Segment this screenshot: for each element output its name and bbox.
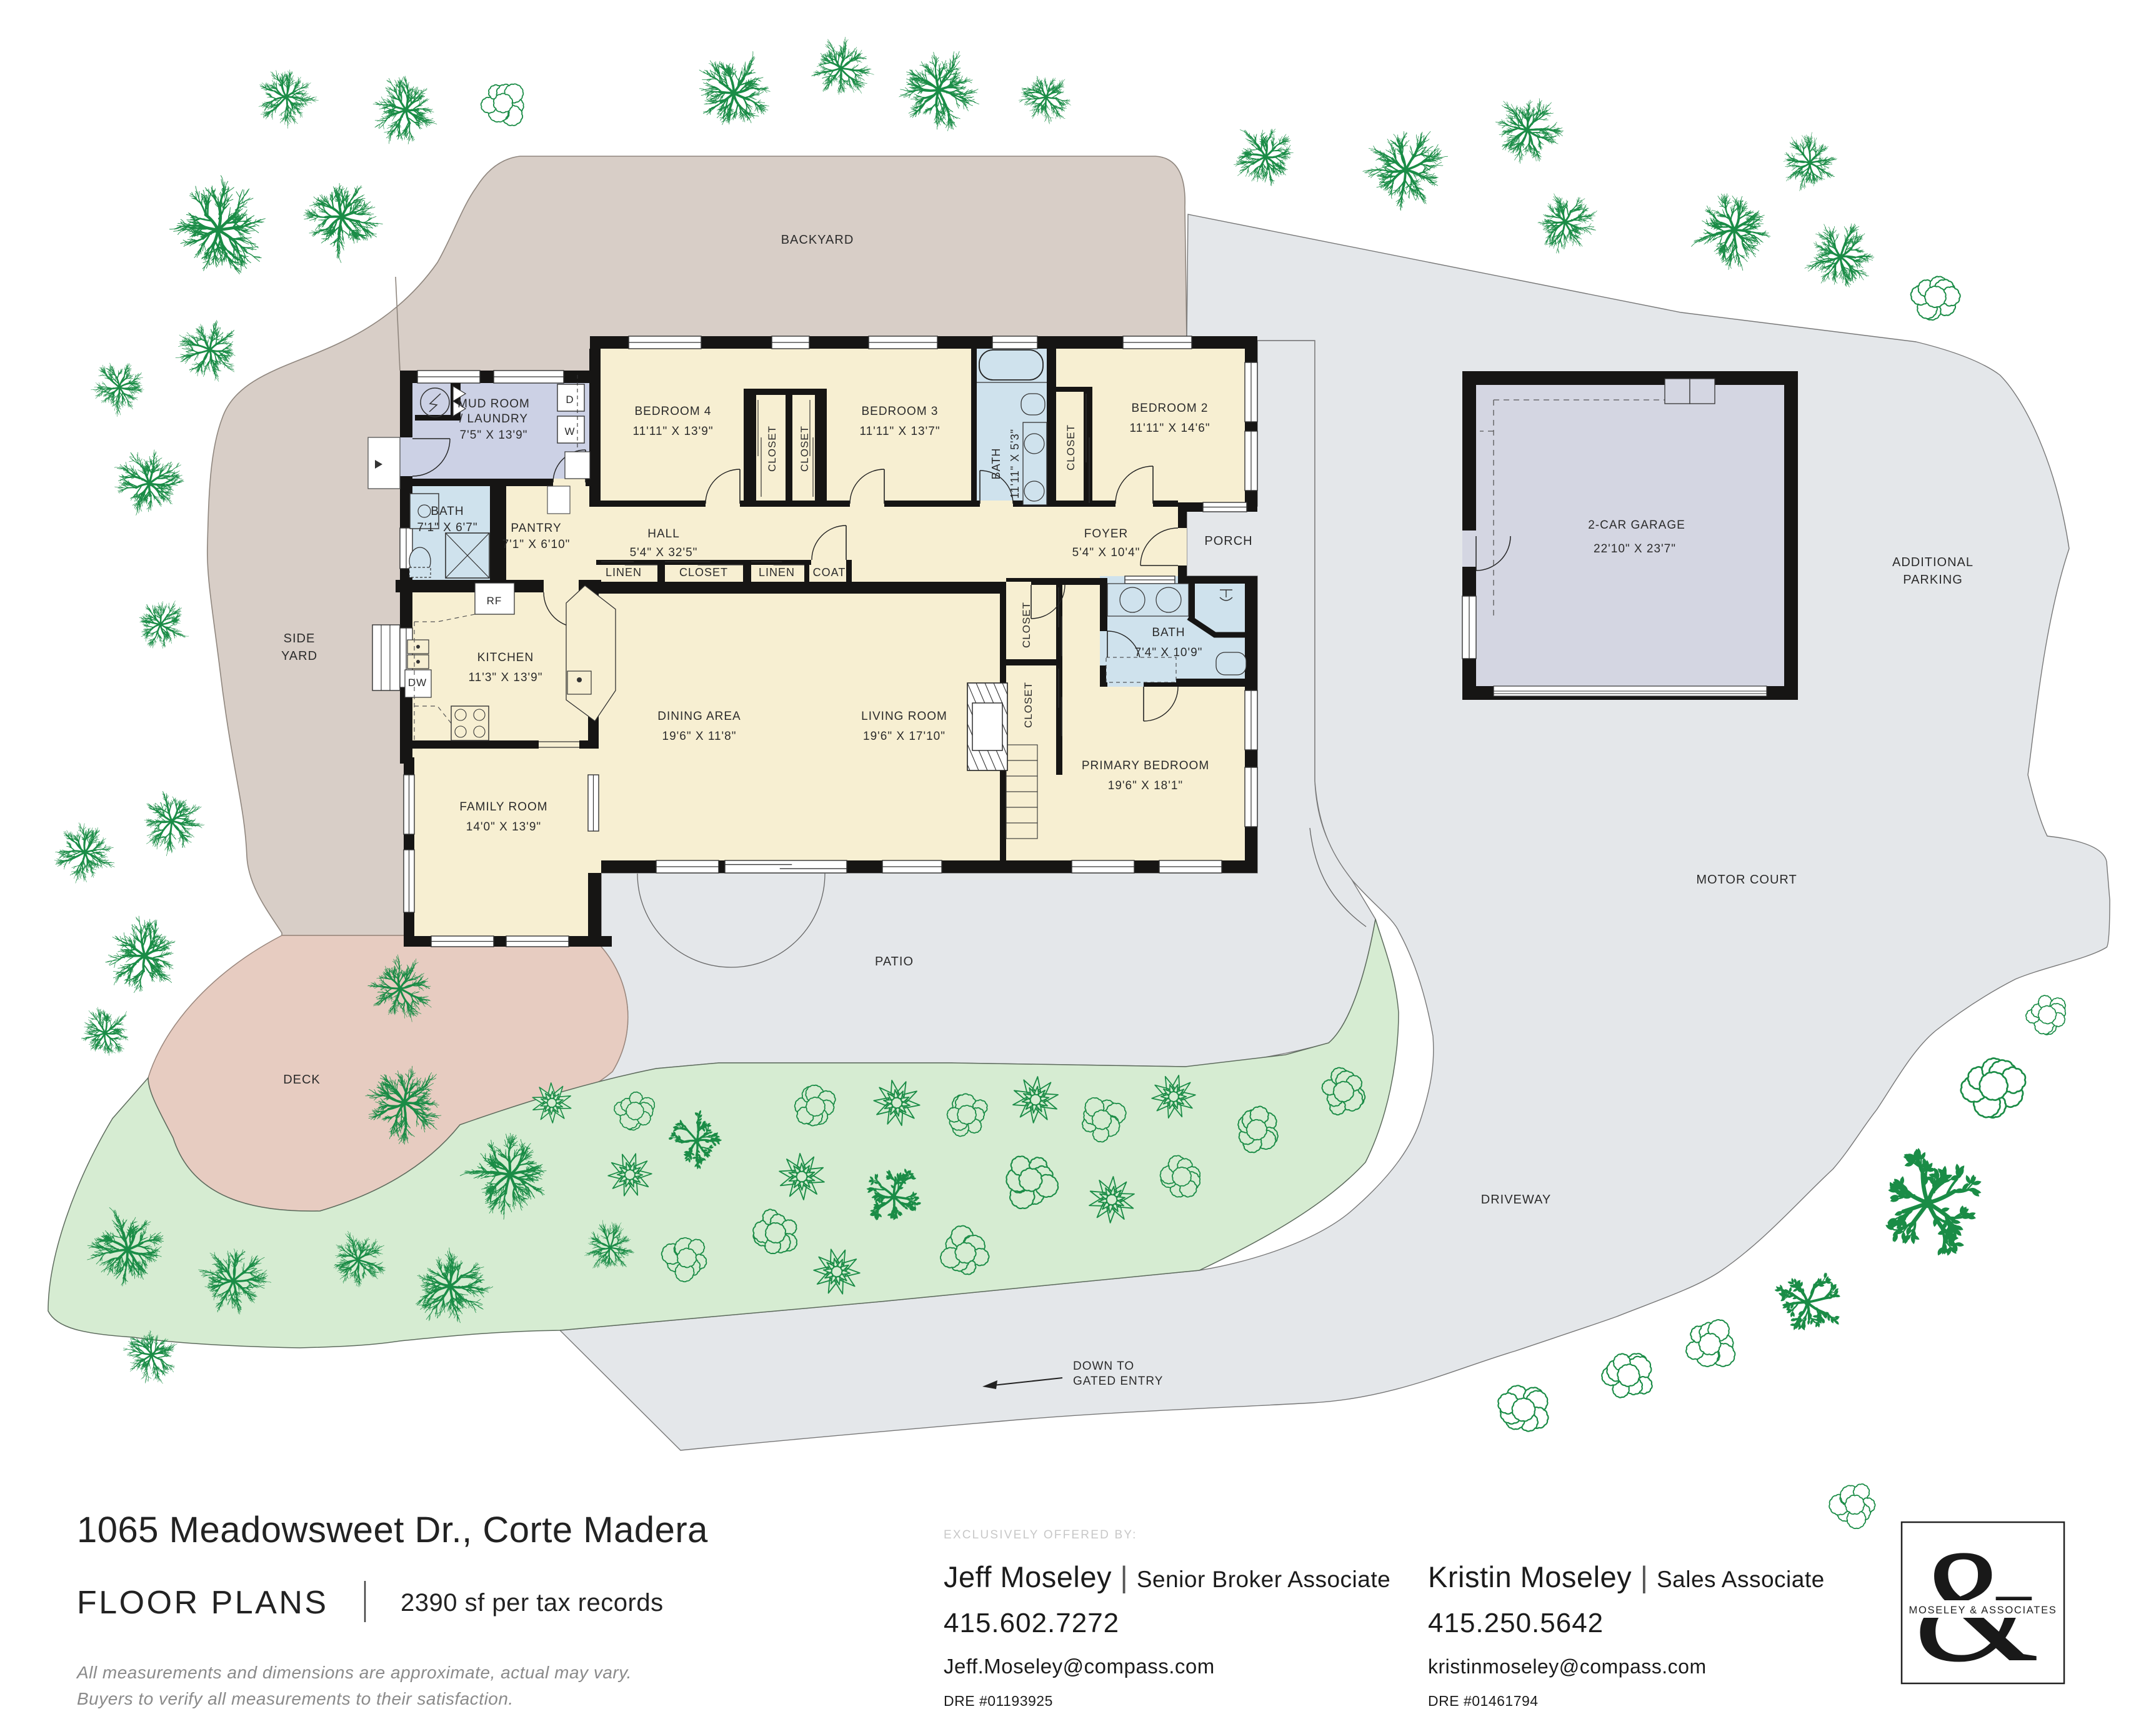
svg-text:BACKYARD: BACKYARD [781,233,854,247]
svg-text:kristinmoseley@compass.com: kristinmoseley@compass.com [1428,1655,1707,1678]
svg-text:CLOSET: CLOSET [1021,602,1032,648]
svg-text:BEDROOM 4: BEDROOM 4 [634,405,711,418]
svg-text:LINEN: LINEN [759,566,795,579]
svg-text:2390 sf per tax records: 2390 sf per tax records [401,1589,664,1617]
svg-text:5'4" X 32'5": 5'4" X 32'5" [630,546,698,559]
svg-text:FAMILY ROOM: FAMILY ROOM [459,800,547,814]
svg-text:BEDROOM 3: BEDROOM 3 [861,405,938,418]
svg-text:PANTRY: PANTRY [511,522,561,535]
svg-text:415.250.5642: 415.250.5642 [1428,1608,1604,1638]
svg-text:19'6" X 11'8": 19'6" X 11'8" [662,730,737,743]
svg-text:DRE #01193925: DRE #01193925 [944,1693,1053,1709]
svg-text:D: D [566,394,574,406]
svg-text:11'11" X 5'3": 11'11" X 5'3" [1009,429,1021,499]
svg-text:HALL: HALL [647,527,680,541]
svg-text:CLOSET: CLOSET [766,426,778,472]
svg-text:CLOSET: CLOSET [679,566,728,579]
svg-text:5'4" X 10'4": 5'4" X 10'4" [1072,546,1140,559]
svg-text:1065 Meadowsweet Dr., Corte Ma: 1065 Meadowsweet Dr., Corte Madera [77,1510,708,1550]
svg-text:BATH: BATH [1152,626,1185,639]
svg-text:BEDROOM 2: BEDROOM 2 [1131,402,1208,415]
svg-text:11'11" X 13'9": 11'11" X 13'9" [632,425,713,438]
svg-text:YARD: YARD [281,649,317,663]
svg-text:14'0" X 13'9": 14'0" X 13'9" [466,820,541,834]
svg-text:EXCLUSIVELY OFFERED BY:: EXCLUSIVELY OFFERED BY: [944,1528,1137,1542]
svg-text:DINING AREA: DINING AREA [657,710,741,723]
svg-text:BATH: BATH [431,505,464,518]
svg-text:11'3" X 13'9": 11'3" X 13'9" [469,671,543,684]
svg-text:Jeff.Moseley@compass.com: Jeff.Moseley@compass.com [944,1655,1215,1678]
svg-text:DRIVEWAY: DRIVEWAY [1481,1193,1551,1207]
svg-text:11'11" X 13'7": 11'11" X 13'7" [859,425,940,438]
svg-text:CLOSET: CLOSET [1065,424,1077,471]
svg-text:ADDITIONAL: ADDITIONAL [1892,556,1974,569]
svg-text:W: W [564,426,575,437]
svg-text:19'6" X 17'10": 19'6" X 17'10" [863,730,946,743]
svg-text:CLOSET: CLOSET [1022,682,1034,728]
svg-text:PARKING: PARKING [1903,573,1963,587]
svg-text:22'10" X 23'7": 22'10" X 23'7" [1594,542,1676,556]
svg-text:FLOOR PLANS: FLOOR PLANS [77,1585,329,1621]
svg-text:/ LAUNDRY: / LAUNDRY [459,412,528,426]
svg-text:DW: DW [408,677,427,689]
svg-text:LINEN: LINEN [606,566,642,579]
svg-text:PATIO: PATIO [875,955,914,969]
svg-text:COAT: COAT [813,566,846,579]
svg-text:All measurements and dimension: All measurements and dimensions are appr… [76,1663,632,1682]
svg-text:FOYER: FOYER [1084,527,1128,541]
svg-text:19'6" X 18'1": 19'6" X 18'1" [1108,779,1183,792]
svg-text:SIDE: SIDE [284,632,316,645]
svg-text:PORCH: PORCH [1204,534,1252,548]
svg-text:7'4" X 10'9": 7'4" X 10'9" [1135,646,1203,659]
svg-text:7'5" X 13'9": 7'5" X 13'9" [460,429,528,442]
svg-text:MUD ROOM: MUD ROOM [457,397,530,411]
svg-text:KITCHEN: KITCHEN [477,651,534,664]
svg-text:BATH: BATH [990,448,1002,480]
svg-text:7'1" X 6'7": 7'1" X 6'7" [417,521,477,534]
svg-text:7'1" X 6'10": 7'1" X 6'10" [502,538,571,551]
svg-text:Buyers to verify all measureme: Buyers to verify all measurements to the… [77,1689,514,1708]
svg-text:PRIMARY BEDROOM: PRIMARY BEDROOM [1082,759,1209,772]
svg-text:GATED ENTRY: GATED ENTRY [1073,1375,1163,1388]
svg-text:DRE #01461794: DRE #01461794 [1428,1693,1539,1709]
svg-text:RF: RF [487,595,502,607]
svg-text:DOWN TO: DOWN TO [1073,1360,1134,1373]
svg-text:MOSELEY & ASSOCIATES: MOSELEY & ASSOCIATES [1909,1605,2057,1616]
svg-text:DECK: DECK [283,1073,321,1087]
svg-text:CLOSET: CLOSET [799,426,811,472]
svg-text:LIVING ROOM: LIVING ROOM [861,710,947,723]
svg-text:11'11" X 14'6": 11'11" X 14'6" [1129,422,1210,435]
svg-text:MOTOR COURT: MOTOR COURT [1696,873,1797,887]
svg-text:415.602.7272: 415.602.7272 [944,1608,1119,1638]
svg-text:2-CAR GARAGE: 2-CAR GARAGE [1588,519,1685,532]
